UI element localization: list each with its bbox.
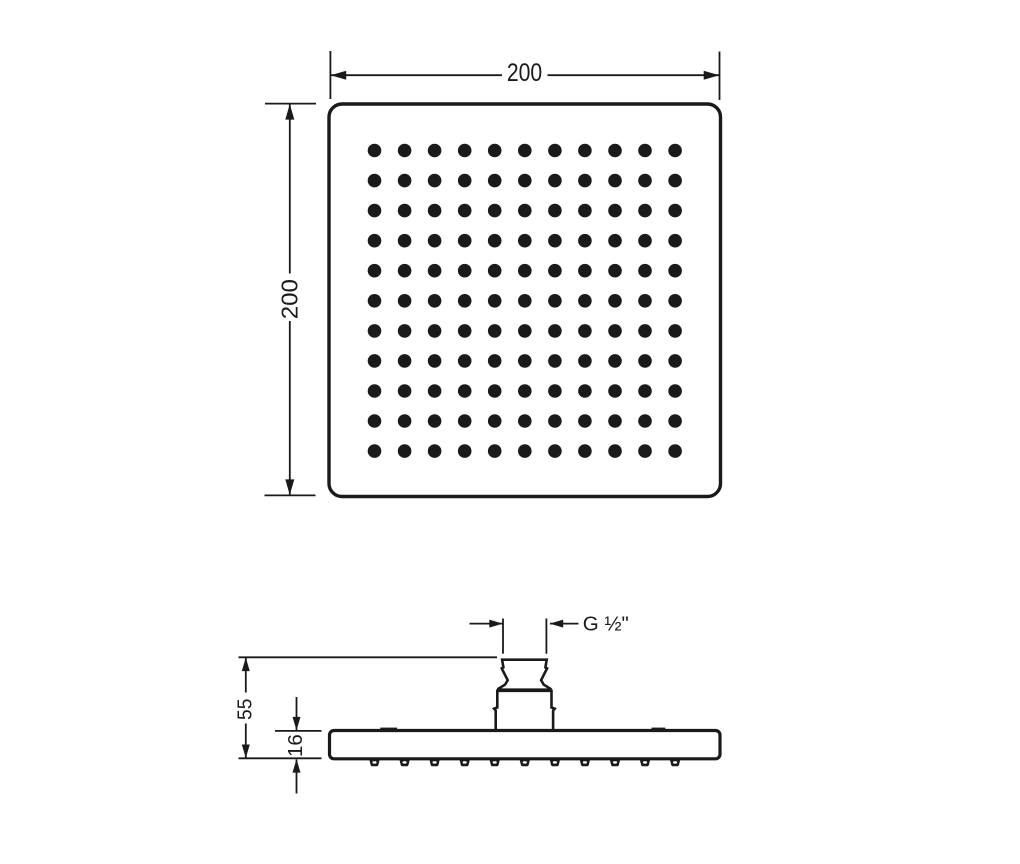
svg-text:G ½": G ½" [583, 612, 629, 635]
svg-text:16: 16 [284, 734, 307, 757]
svg-text:200: 200 [276, 279, 302, 319]
svg-text:55: 55 [234, 699, 257, 721]
svg-text:200: 200 [507, 59, 542, 87]
